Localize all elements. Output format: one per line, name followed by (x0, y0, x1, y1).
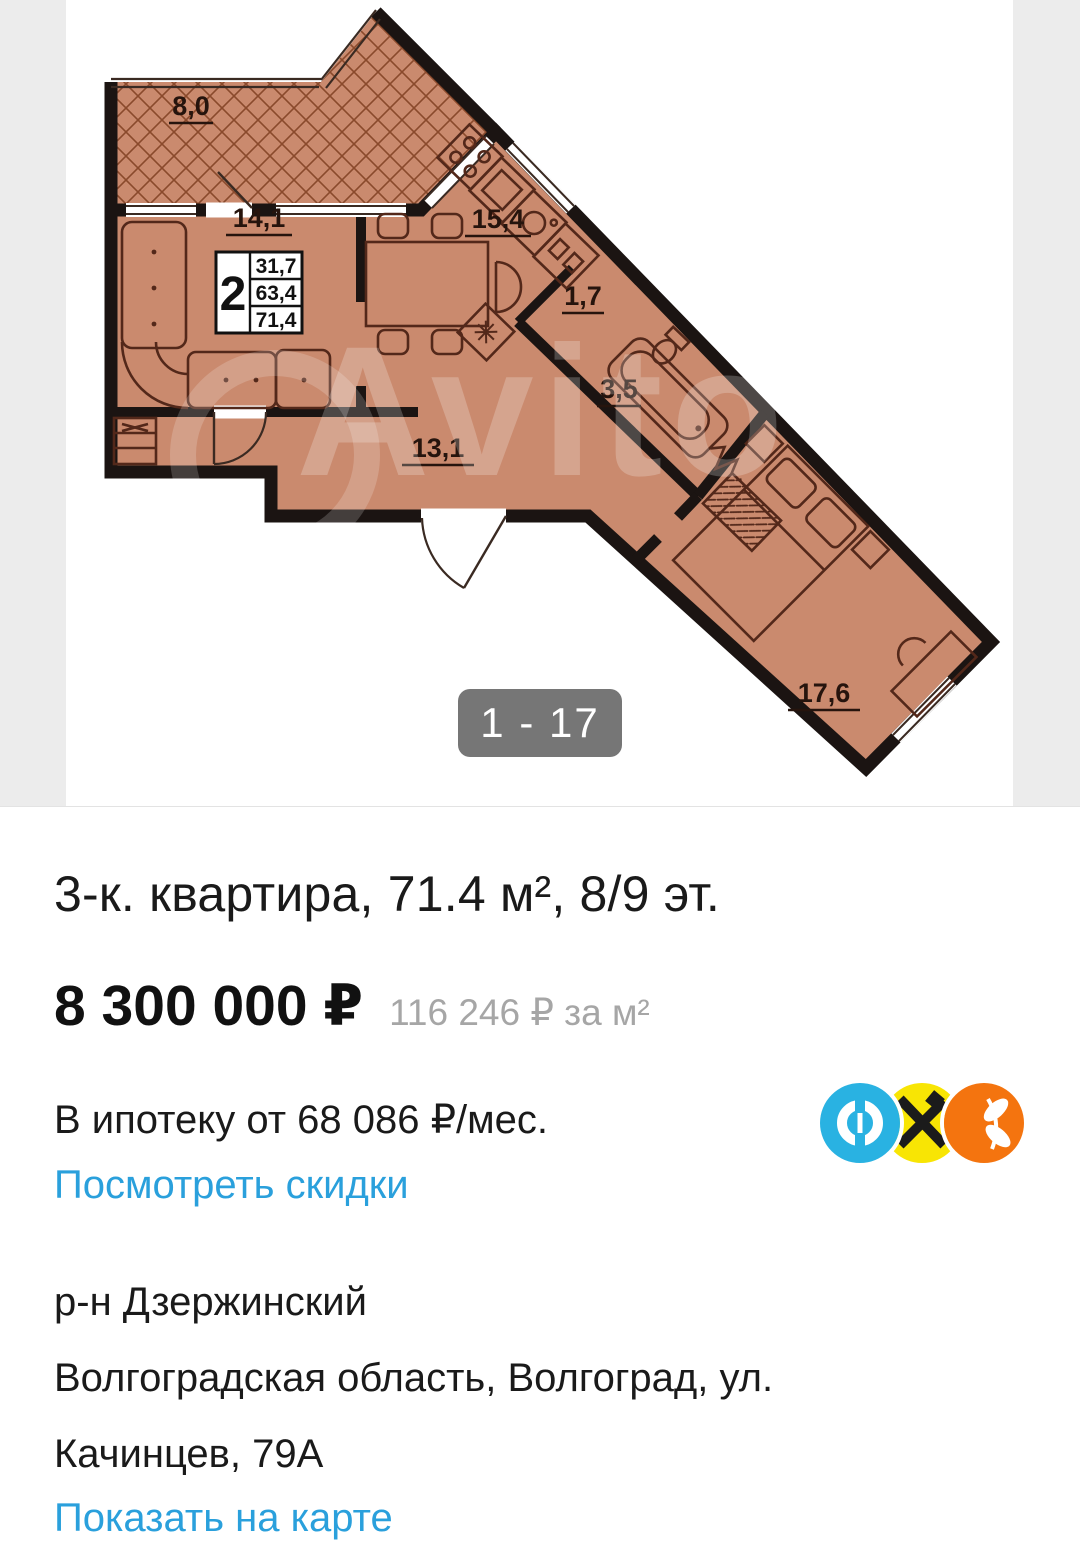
svg-text:Avito: Avito (296, 309, 792, 515)
rooms-count: 2 (220, 268, 247, 321)
apartment-info-box: 2 31,7 63,4 71,4 (216, 252, 302, 333)
show-on-map-link[interactable]: Показать на карте (54, 1496, 393, 1541)
photo-counter-badge: 1 - 17 (458, 689, 622, 757)
balcony-area (111, 10, 496, 210)
discounts-link[interactable]: Посмотреть скидки (54, 1163, 409, 1208)
photo-gallery[interactable]: 8,0 14,1 15,4 1,7 3,5 13,1 17,6 2 31,7 6… (0, 0, 1080, 807)
photo-gutter-left (0, 0, 66, 806)
living-area: 31,7 (256, 255, 297, 278)
price-per-m2: 116 246 ₽ за м² (389, 991, 650, 1034)
balcony-label: 8,0 (172, 91, 210, 121)
location-block: р-н Дзержинский Волгоградская область, В… (54, 1264, 1026, 1541)
bedroom-label: 17,6 (798, 678, 851, 708)
kitchen-label: 15,4 (472, 204, 525, 234)
listing-content: 3-к. квартира, 71.4 м², 8/9 эт. 8 300 00… (0, 807, 1080, 1541)
address-line-1: Волгоградская область, Волгоград, ул. (54, 1340, 1026, 1416)
bank-logos[interactable] (816, 1079, 1028, 1167)
total-area: 71,4 (256, 309, 297, 332)
district: р-н Дзержинский (54, 1264, 1026, 1340)
address-line-2: Качинцев, 79А (54, 1416, 1026, 1492)
otkritie-bank-icon (816, 1079, 904, 1167)
orange-bank-icon (940, 1079, 1028, 1167)
usable-area: 63,4 (256, 282, 297, 305)
photo-gutter-right (1013, 0, 1080, 806)
corridor-label: 1,7 (564, 281, 602, 311)
price-row: 8 300 000 ₽ 116 246 ₽ за м² (54, 973, 1026, 1039)
page-title: 3-к. квартира, 71.4 м², 8/9 эт. (54, 865, 1026, 923)
price: 8 300 000 ₽ (54, 973, 363, 1039)
floor-plan-image[interactable]: 8,0 14,1 15,4 1,7 3,5 13,1 17,6 2 31,7 6… (66, 0, 1014, 805)
living-label: 14,1 (233, 203, 286, 233)
